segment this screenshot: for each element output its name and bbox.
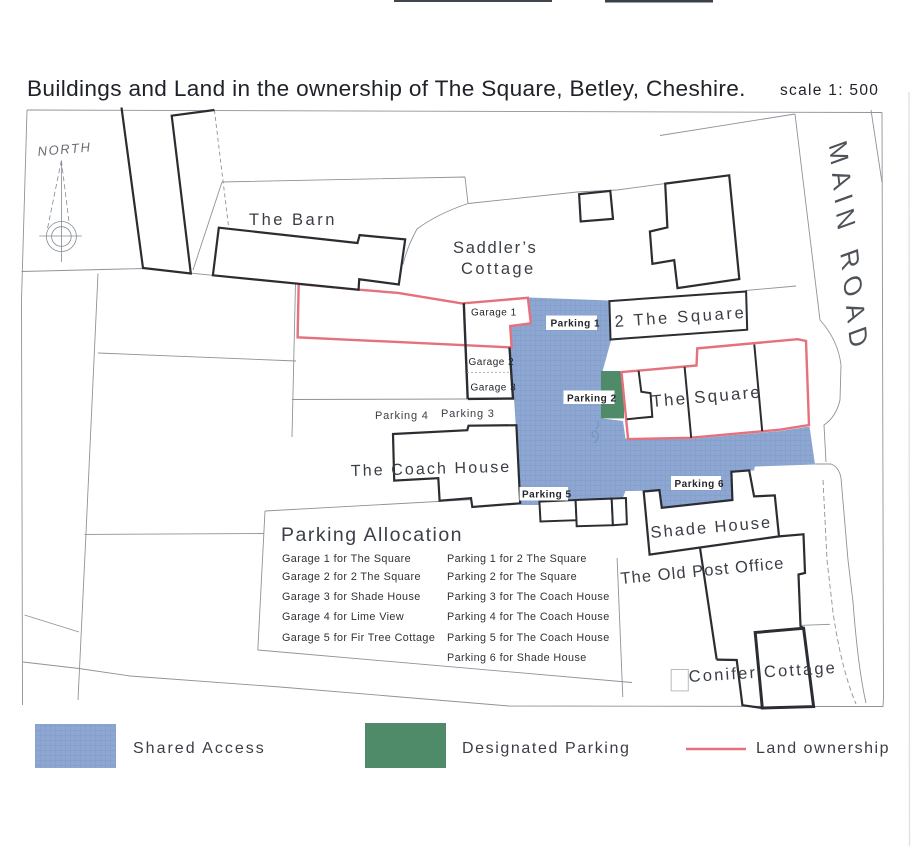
- svg-text:Parking 4 for The Coach House: Parking 4 for The Coach House: [447, 611, 610, 623]
- svg-text:Shared Access: Shared Access: [133, 740, 266, 757]
- svg-text:Garage 5 for Fir Tree Cottage: Garage 5 for Fir Tree Cottage: [282, 632, 435, 644]
- svg-text:Parking 2 for The Square: Parking 2 for The Square: [447, 571, 577, 583]
- svg-text:Parking 3: Parking 3: [441, 408, 495, 420]
- svg-text:Parking 1 for 2 The Square: Parking 1 for 2 The Square: [447, 553, 587, 565]
- svg-text:Parking Allocation: Parking Allocation: [281, 524, 463, 546]
- svg-text:Parking 1: Parking 1: [551, 319, 601, 330]
- svg-text:Parking 2: Parking 2: [567, 394, 617, 405]
- svg-text:scale 1: 500: scale 1: 500: [780, 82, 879, 99]
- svg-text:Parking 6 for Shade House: Parking 6 for Shade House: [447, 652, 587, 664]
- svg-text:Parking 3 for The Coach House: Parking 3 for The Coach House: [447, 591, 610, 603]
- svg-text:Parking 6: Parking 6: [675, 479, 725, 490]
- svg-text:Garage 3: Garage 3: [471, 383, 517, 394]
- svg-text:Garage 4 for Lime View: Garage 4 for Lime View: [282, 611, 404, 623]
- svg-text:Parking 5: Parking 5: [522, 490, 572, 501]
- svg-text:Garage 1: Garage 1: [471, 308, 517, 319]
- svg-text:The Barn: The Barn: [249, 211, 337, 229]
- svg-text:Garage 2 for 2 The Square: Garage 2 for 2 The Square: [282, 571, 421, 583]
- svg-text:Parking 4: Parking 4: [375, 410, 429, 422]
- svg-text:Designated Parking: Designated Parking: [462, 740, 630, 757]
- svg-text:Buildings and Land in the owne: Buildings and Land in the ownership of T…: [27, 76, 746, 101]
- svg-text:Land ownership: Land ownership: [756, 740, 890, 757]
- svg-text:Garage 2: Garage 2: [469, 357, 515, 368]
- svg-text:Garage 3 for Shade House: Garage 3 for Shade House: [282, 591, 421, 603]
- svg-text:Garage 1 for The Square: Garage 1 for The Square: [282, 553, 411, 565]
- svg-text:Cottage: Cottage: [461, 260, 536, 278]
- svg-text:Parking 5 for The Coach House: Parking 5 for The Coach House: [447, 632, 610, 644]
- svg-text:Saddler’s: Saddler’s: [453, 239, 537, 257]
